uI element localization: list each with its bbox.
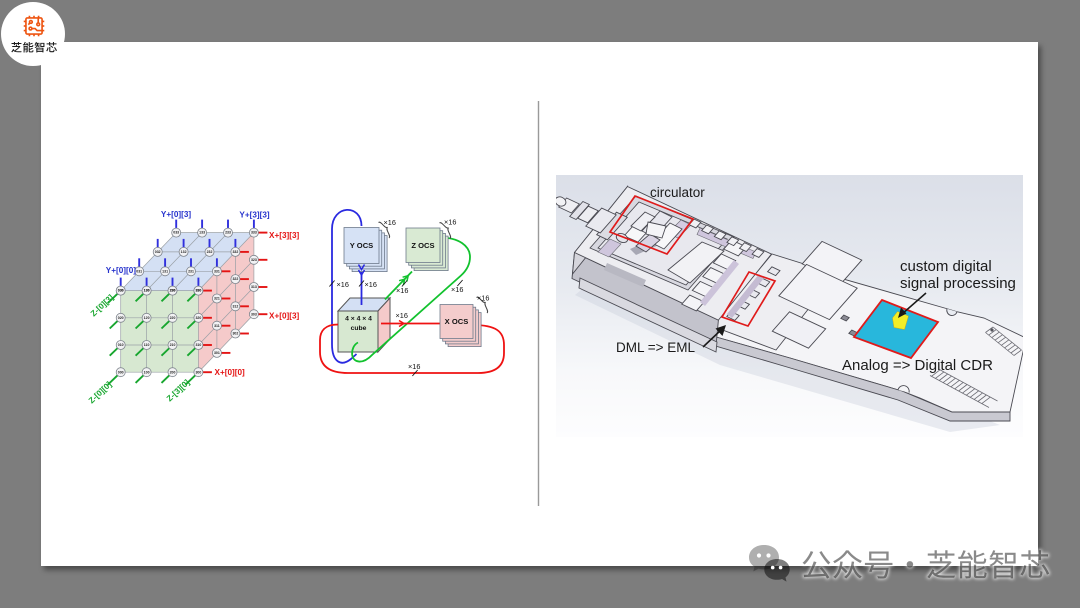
- svg-text:×16: ×16: [408, 362, 420, 371]
- svg-text:032: 032: [155, 250, 161, 254]
- svg-text:333: 333: [251, 231, 257, 235]
- svg-text:133: 133: [199, 231, 205, 235]
- svg-text:220: 220: [170, 316, 176, 320]
- svg-text:231: 231: [188, 269, 194, 273]
- svg-text:323: 323: [251, 258, 257, 262]
- svg-text:030: 030: [118, 289, 124, 293]
- svg-text:Analog => Digital CDR: Analog => Digital CDR: [842, 357, 993, 374]
- svg-text:X OCS: X OCS: [445, 317, 469, 326]
- svg-text:Z-[0][3]: Z-[0][3]: [89, 293, 116, 319]
- svg-text:X+[0][0]: X+[0][0]: [215, 368, 246, 377]
- svg-text:200: 200: [170, 370, 176, 374]
- svg-text:313: 313: [251, 285, 257, 289]
- svg-text:circulator: circulator: [650, 185, 705, 200]
- svg-text:000: 000: [118, 370, 124, 374]
- svg-text:131: 131: [162, 269, 168, 273]
- svg-text:031: 031: [136, 269, 142, 273]
- svg-text:010: 010: [118, 343, 124, 347]
- svg-text:Z-[0][0]: Z-[0][0]: [87, 380, 114, 406]
- svg-text:X+[0][3]: X+[0][3]: [269, 312, 300, 321]
- svg-text:310: 310: [195, 343, 201, 347]
- svg-text:Y+[3][3]: Y+[3][3]: [239, 211, 270, 220]
- svg-text:×16: ×16: [444, 218, 456, 227]
- svg-text:×16: ×16: [396, 311, 408, 320]
- svg-text:×16: ×16: [337, 280, 349, 289]
- svg-text:4 × 4 × 4: 4 × 4 × 4: [345, 316, 372, 323]
- svg-text:331: 331: [214, 269, 220, 273]
- svg-text:custom digital: custom digital: [900, 258, 992, 275]
- svg-text:120: 120: [144, 316, 150, 320]
- svg-text:110: 110: [144, 343, 150, 347]
- svg-text:×16: ×16: [365, 280, 377, 289]
- svg-text:330: 330: [195, 289, 201, 293]
- svg-text:232: 232: [207, 250, 213, 254]
- svg-text:321: 321: [214, 297, 220, 301]
- svg-text:300: 300: [195, 370, 201, 374]
- svg-text:×16: ×16: [477, 294, 489, 303]
- svg-text:×16: ×16: [384, 218, 396, 227]
- svg-text:020: 020: [118, 316, 124, 320]
- svg-text:Z-[3][0]: Z-[3][0]: [165, 378, 192, 404]
- svg-text:×16: ×16: [396, 286, 408, 295]
- svg-text:210: 210: [170, 343, 176, 347]
- svg-text:signal processing: signal processing: [900, 275, 1016, 292]
- svg-text:cube: cube: [351, 325, 367, 332]
- svg-text:033: 033: [173, 231, 179, 235]
- svg-text:233: 233: [225, 231, 231, 235]
- svg-text:311: 311: [214, 324, 220, 328]
- svg-text:301: 301: [214, 351, 220, 355]
- svg-text:132: 132: [181, 250, 187, 254]
- svg-text:230: 230: [170, 289, 176, 293]
- svg-text:DML => EML: DML => EML: [616, 340, 696, 355]
- svg-text:322: 322: [232, 277, 238, 281]
- svg-text:Y+[0][3]: Y+[0][3]: [161, 210, 192, 219]
- svg-text:303: 303: [251, 312, 257, 316]
- svg-text:302: 302: [232, 332, 238, 336]
- svg-text:320: 320: [195, 316, 201, 320]
- svg-text:Y OCS: Y OCS: [350, 241, 374, 250]
- svg-text:130: 130: [144, 289, 150, 293]
- svg-text:×16: ×16: [451, 285, 463, 294]
- svg-text:312: 312: [232, 304, 238, 308]
- svg-text:X+[3][3]: X+[3][3]: [269, 231, 300, 240]
- svg-text:Z OCS: Z OCS: [411, 241, 434, 250]
- svg-text:Y+[0][0]: Y+[0][0]: [106, 266, 137, 275]
- svg-text:100: 100: [144, 370, 150, 374]
- svg-text:332: 332: [232, 250, 238, 254]
